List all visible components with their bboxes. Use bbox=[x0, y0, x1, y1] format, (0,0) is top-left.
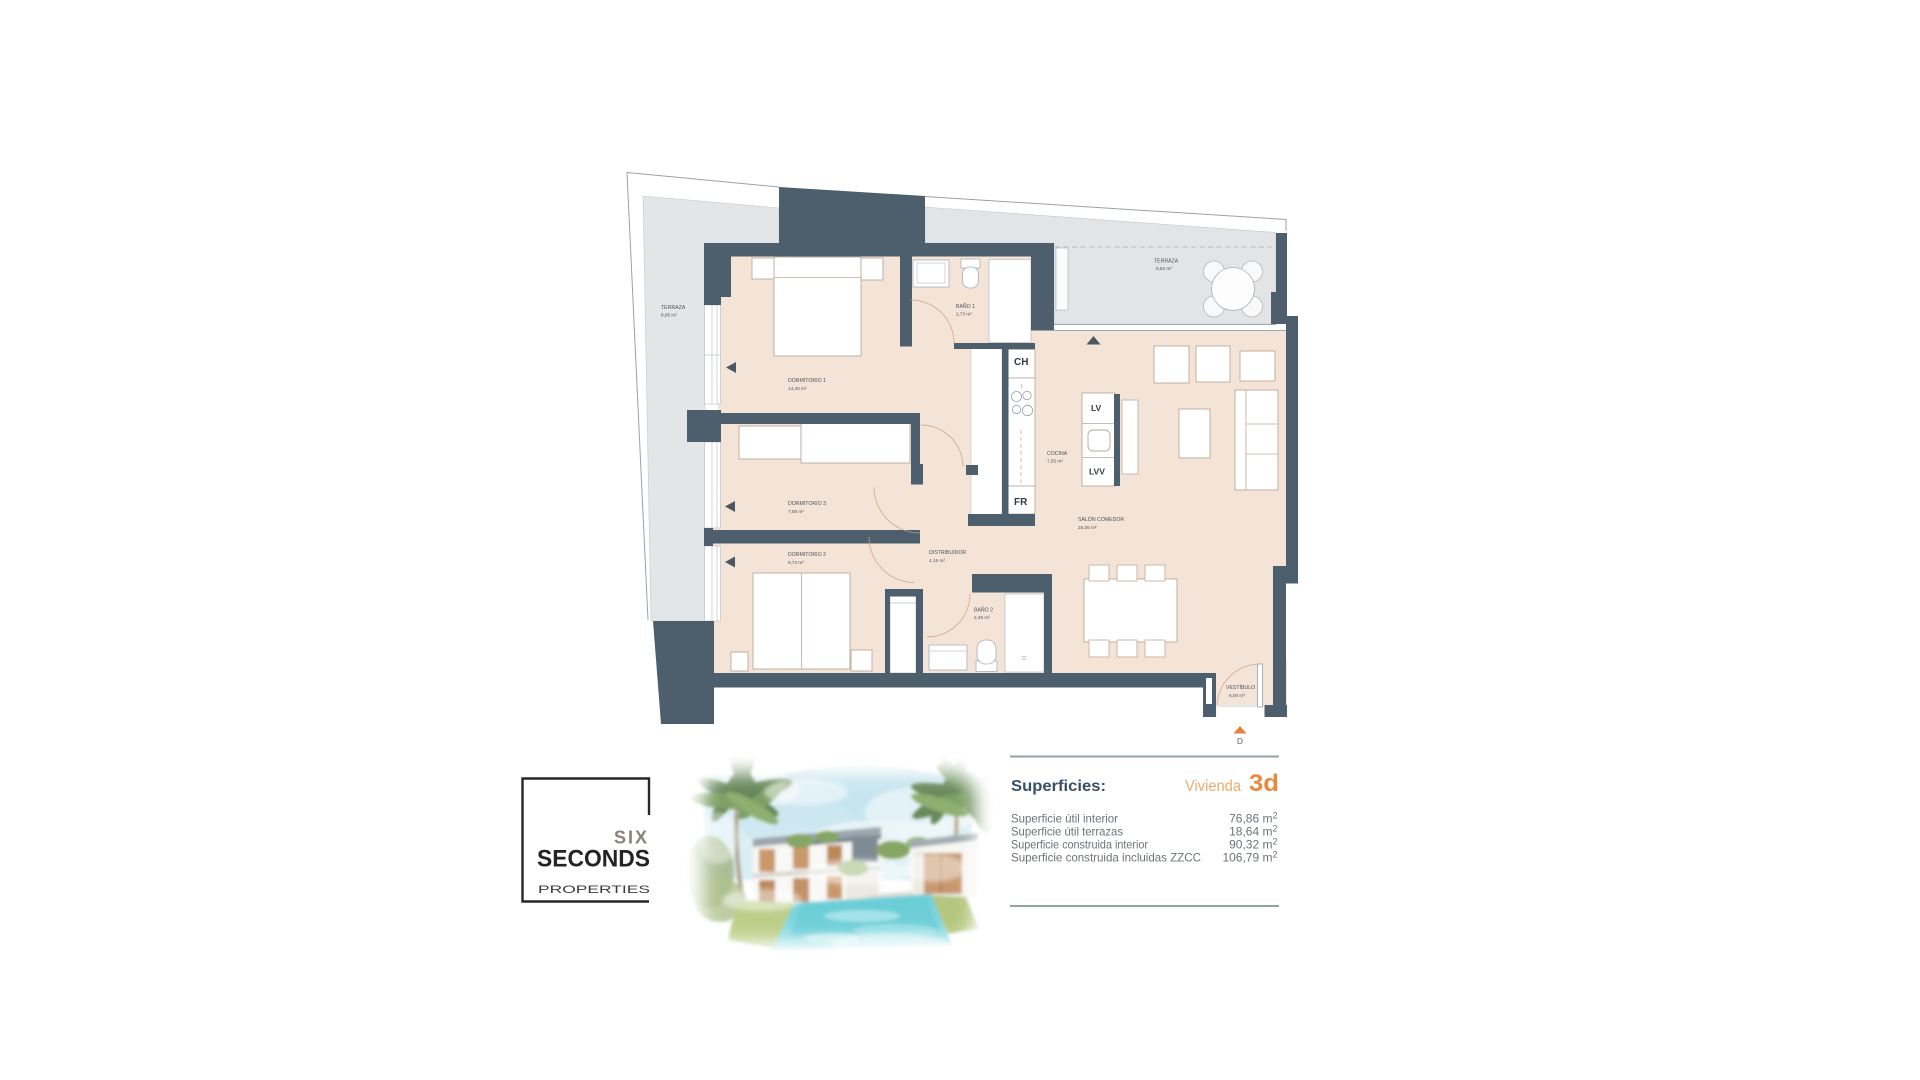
svg-text:106,79 m2: 106,79 m2 bbox=[1222, 850, 1277, 865]
svg-text:DISTRIBUIDOR: DISTRIBUIDOR bbox=[929, 550, 966, 556]
svg-text:7,05 m²: 7,05 m² bbox=[788, 509, 804, 514]
svg-text:CH: CH bbox=[1014, 357, 1028, 368]
svg-text:Superficie útil terrazas: Superficie útil terrazas bbox=[1011, 825, 1123, 839]
svg-text:2,73 m²: 2,73 m² bbox=[956, 312, 972, 317]
svg-text:LV: LV bbox=[1091, 403, 1102, 413]
svg-text:D: D bbox=[1237, 736, 1243, 746]
svg-text:76,86 m2: 76,86 m2 bbox=[1229, 811, 1277, 826]
svg-text:7,55 m²: 7,55 m² bbox=[1047, 459, 1063, 464]
svg-text:BAÑO 1: BAÑO 1 bbox=[956, 303, 975, 310]
svg-text:PROPERTIES: PROPERTIES bbox=[538, 884, 650, 896]
svg-text:Superficie construida incluida: Superficie construida incluidas ZZCC bbox=[1011, 851, 1201, 865]
svg-text:TERRAZA: TERRAZA bbox=[1154, 259, 1179, 265]
svg-text:Superficie útil interior: Superficie útil interior bbox=[1011, 812, 1118, 826]
svg-text:VESTÍBULO: VESTÍBULO bbox=[1226, 684, 1255, 691]
svg-text:SECONDS: SECONDS bbox=[537, 846, 650, 873]
svg-text:25,05 m²: 25,05 m² bbox=[1078, 525, 1097, 530]
svg-text:90,32 m2: 90,32 m2 bbox=[1229, 837, 1277, 852]
svg-text:14,40 m²: 14,40 m² bbox=[788, 386, 807, 391]
svg-text:6,00 m²: 6,00 m² bbox=[1229, 693, 1245, 698]
svg-text:FR: FR bbox=[1014, 497, 1028, 508]
svg-text:2,45 m²: 2,45 m² bbox=[974, 615, 990, 620]
svg-text:SIX: SIX bbox=[614, 828, 649, 848]
svg-text:18,64 m2: 18,64 m2 bbox=[1229, 824, 1277, 839]
svg-text:COCINA: COCINA bbox=[1047, 451, 1068, 457]
svg-text:TERRAZA: TERRAZA bbox=[661, 305, 686, 311]
svg-text:Superficie construida interior: Superficie construida interior bbox=[1011, 838, 1148, 852]
svg-text:4,15 m²: 4,15 m² bbox=[929, 558, 945, 563]
svg-text:8,84 m²: 8,84 m² bbox=[1156, 266, 1172, 271]
svg-text:LVV: LVV bbox=[1089, 467, 1105, 477]
svg-text:Vivienda: Vivienda bbox=[1185, 778, 1241, 795]
svg-text:8,85 m²: 8,85 m² bbox=[661, 313, 677, 318]
svg-text:SALÓN COMEDOR: SALÓN COMEDOR bbox=[1078, 516, 1124, 523]
svg-text:BAÑO 2: BAÑO 2 bbox=[974, 607, 993, 614]
svg-text:Superficies:: Superficies: bbox=[1011, 778, 1106, 795]
svg-text:DORMITORIO 2: DORMITORIO 2 bbox=[788, 552, 826, 558]
svg-text:DORMITORIO 1: DORMITORIO 1 bbox=[788, 378, 826, 384]
svg-text:DORMITORIO 3: DORMITORIO 3 bbox=[788, 501, 826, 507]
svg-text:3d: 3d bbox=[1249, 770, 1279, 797]
svg-text:9,73 m²: 9,73 m² bbox=[788, 560, 804, 565]
